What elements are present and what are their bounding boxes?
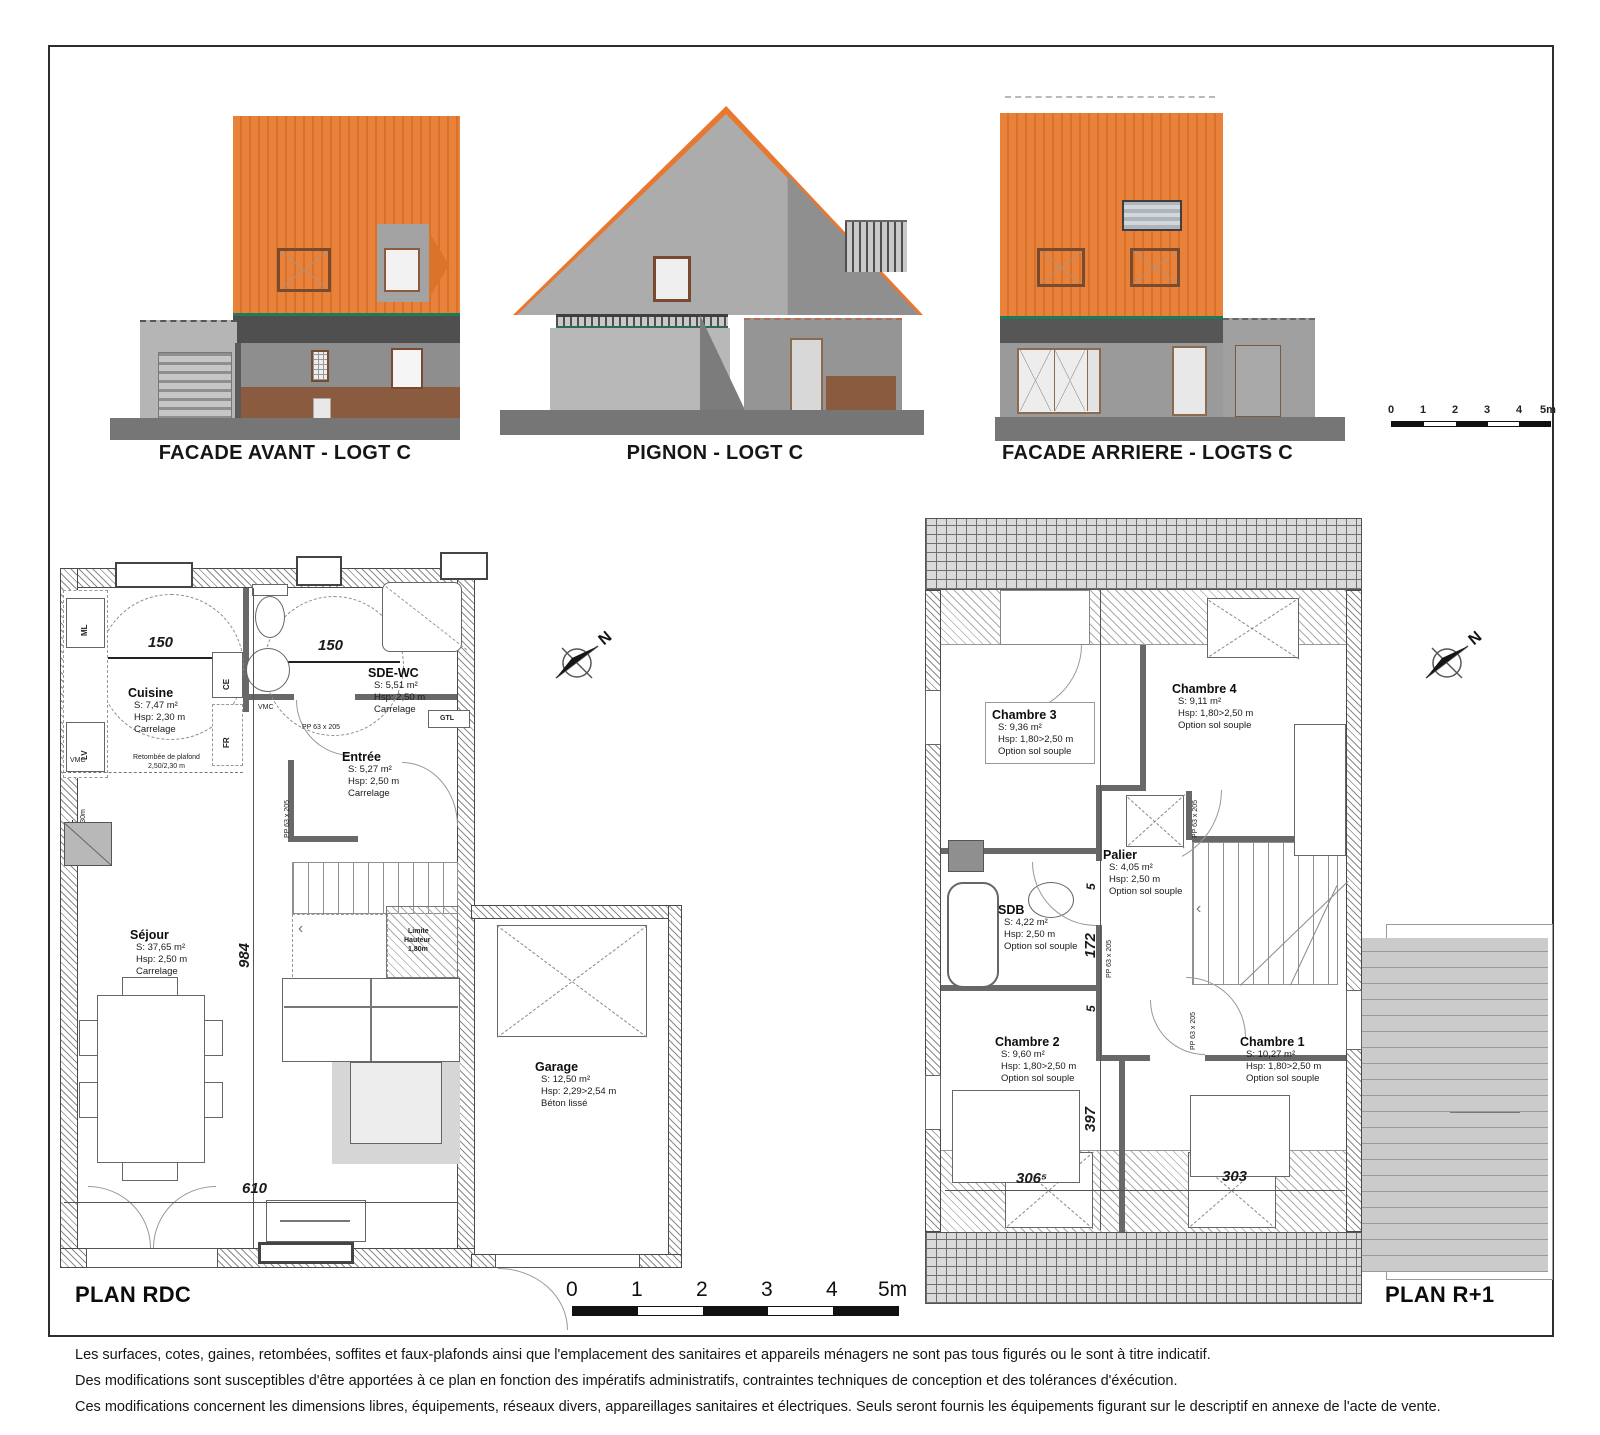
entree-floor: Carrelage — [348, 788, 399, 800]
r1-pp-3: PP 63 x 205 — [1192, 800, 1199, 838]
avant-wall — [233, 343, 460, 389]
scale-bottom-tick-5: 5m — [878, 1278, 907, 1302]
r1-dim-172: 172 — [1082, 933, 1099, 958]
chair-top — [122, 977, 178, 996]
ch2-area: S: 9,60 m² — [1001, 1049, 1076, 1061]
r1-dormer-gap — [1000, 590, 1090, 645]
sofa-backline — [284, 1006, 458, 1008]
room-ch3: Chambre 3 S: 9,36 m² Hsp: 1,80>2,50 m Op… — [992, 708, 1073, 758]
armchair — [350, 1062, 442, 1144]
r1-stairs — [1192, 842, 1338, 985]
rdc-dim150-cuisine-line — [103, 657, 230, 659]
sdb-bathtub — [947, 882, 999, 988]
avant-downpipe — [235, 343, 241, 420]
r1-wall-left — [925, 590, 941, 1232]
cuisine-floor: Carrelage — [134, 724, 185, 736]
r1-hdim-line — [945, 1190, 1345, 1191]
ch2-name: Chambre 2 — [995, 1035, 1076, 1049]
facade-arriere-label: FACADE ARRIERE - LOGTS C — [975, 442, 1320, 465]
sofa-split — [370, 979, 372, 1061]
rdc-pp-label-2: PP 63 x 205 — [284, 800, 291, 838]
arriere-annex-door — [1235, 345, 1281, 417]
footer-line-1: Les surfaces, cotes, gaines, retombées, … — [75, 1347, 1211, 1363]
room-cuisine: Cuisine S: 7,47 m² Hsp: 2,30 m Carrelage — [128, 686, 185, 736]
sde-floor: Carrelage — [374, 704, 425, 716]
r1-pp-2: PP 63 x 205 — [1190, 1012, 1197, 1050]
scale-bottom-tick-4: 4 — [826, 1278, 838, 1302]
avant-dark-band — [233, 316, 460, 343]
rdc-dim150-cuisine: 150 — [148, 634, 173, 651]
scale-top-tick-0: 0 — [1388, 404, 1394, 416]
r1-pp-1: PP 63 x 205 — [1106, 940, 1113, 978]
palier-area: S: 4,05 m² — [1109, 862, 1182, 874]
r1-window-left-ch3 — [925, 690, 941, 745]
facade-avant-label: FACADE AVANT - LOGT C — [110, 442, 460, 465]
footer-line-3: Ces modifications concernent les dimensi… — [75, 1399, 1441, 1415]
rdc-dim150-sde: 150 — [318, 637, 343, 654]
r1-window-right-ch1 — [1346, 990, 1362, 1050]
room-sdb: SDB S: 4,22 m² Hsp: 2,50 m Option sol so… — [998, 903, 1077, 953]
pignon-door — [790, 338, 823, 412]
scale-top-tick-5: 5m — [1540, 404, 1556, 416]
avant-brown-band — [233, 387, 460, 420]
room-ch4: Chambre 4 S: 9,11 m² Hsp: 1,80>2,50 m Op… — [1172, 682, 1253, 732]
ch1-area: S: 10,27 m² — [1246, 1049, 1321, 1061]
scale-bottom-tick-2: 2 — [696, 1278, 708, 1302]
rdc-pp-label-1: PP 63 x 205 — [302, 724, 340, 731]
pignon-ground — [500, 410, 924, 435]
room-entree: Entrée S: 5,27 m² Hsp: 2,50 m Carrelage — [342, 750, 399, 800]
ch4-bed — [1294, 724, 1346, 856]
r1-window-left-ch2 — [925, 1075, 941, 1130]
palier-name: Palier — [1103, 848, 1182, 862]
pignon-window — [653, 256, 691, 302]
r1-dim-397: 397 — [1082, 1107, 1099, 1132]
cuisine-fr-label: FR — [222, 737, 231, 748]
ch4-hsp: Hsp: 1,80>2,50 m — [1178, 708, 1253, 720]
cuisine-lv-box — [66, 722, 105, 772]
garage-door-gap — [495, 1254, 640, 1268]
cuisine-name: Cuisine — [128, 686, 185, 700]
avant-skylight-window — [277, 248, 331, 292]
avant-postbox — [313, 398, 331, 420]
retombee-dashline — [63, 772, 243, 773]
chair-right-2 — [204, 1082, 223, 1118]
entree-name: Entrée — [342, 750, 399, 764]
r1-wall-palier-top — [1096, 785, 1146, 791]
ch4-floor: Option sol souple — [1178, 720, 1253, 732]
room-ch2: Chambre 2 S: 9,60 m² Hsp: 1,80>2,50 m Op… — [995, 1035, 1076, 1085]
palier-hsp: Hsp: 2,50 m — [1109, 874, 1182, 886]
tv-stand-line — [280, 1220, 350, 1222]
rdc-stairs-dashed — [292, 914, 388, 982]
scale-bottom-bar — [572, 1306, 899, 1316]
palier-floor: Option sol souple — [1109, 886, 1182, 898]
cuisine-ce-box — [212, 652, 243, 698]
plan-r1-title: PLAN R+1 — [1385, 1282, 1494, 1308]
r1-dim-303: 303 — [1222, 1168, 1247, 1185]
room-ch1: Chambre 1 S: 10,27 m² Hsp: 1,80>2,50 m O… — [1240, 1035, 1321, 1085]
avant-window-right — [391, 348, 423, 389]
arriere-roof-window-right — [1130, 248, 1180, 287]
terrace-deck — [1362, 938, 1548, 1272]
terrace-arrow-line — [1450, 1112, 1520, 1113]
rdc-window-cuisine — [115, 562, 193, 588]
r1-wall-right — [1346, 590, 1362, 1232]
scale-top-bar — [1391, 421, 1551, 427]
sdb-hsp: Hsp: 2,50 m — [1004, 929, 1077, 941]
avant-ground — [110, 418, 460, 440]
arriere-roof — [1000, 113, 1223, 316]
sde-hsp: Hsp: 2,50 m — [374, 692, 425, 704]
arriere-dark-band — [1000, 319, 1223, 343]
room-sde: SDE-WC S: 5,51 m² Hsp: 2,50 m Carrelage — [368, 666, 425, 716]
scale-bottom-tick-1: 1 — [631, 1278, 643, 1302]
scale-top-tick-1: 1 — [1420, 404, 1426, 416]
arriere-roof-window-left — [1037, 248, 1085, 287]
scale-top-tick-2: 2 — [1452, 404, 1458, 416]
avant-dormer-window — [384, 248, 420, 292]
chair-bottom — [122, 1162, 178, 1181]
sejour-floor: Carrelage — [136, 966, 187, 978]
gtl-label: GTL — [440, 715, 454, 722]
arriere-ridge-line — [1005, 96, 1215, 98]
garage-name: Garage — [535, 1060, 616, 1074]
arriere-french-door-sidelight — [1087, 350, 1099, 411]
dining-table — [97, 995, 205, 1163]
r1-stairs-arrow: ‹ — [1196, 900, 1201, 918]
limite-label-2: Hauteur — [404, 937, 430, 944]
ch1-name: Chambre 1 — [1240, 1035, 1321, 1049]
sde-name: SDE-WC — [368, 666, 425, 680]
scale-bottom-tick-0: 0 — [566, 1278, 578, 1302]
pignon-label: PIGNON - LOGT C — [520, 442, 910, 465]
room-palier: Palier S: 4,05 m² Hsp: 2,50 m Option sol… — [1103, 848, 1182, 898]
ch3-floor: Option sol souple — [998, 746, 1073, 758]
chair-right-1 — [204, 1020, 223, 1056]
plan-rdc-title: PLAN RDC — [75, 1282, 191, 1308]
retombee-label: Retombée de plafond — [133, 754, 200, 761]
scale-top-tick-4: 4 — [1516, 404, 1522, 416]
avant-window-small — [311, 350, 329, 382]
ch3-area: S: 9,36 m² — [998, 722, 1073, 734]
garage-wall-right — [668, 905, 682, 1268]
ch1-hsp: Hsp: 1,80>2,50 m — [1246, 1061, 1321, 1073]
r1-dim-306: 306⁵ — [1016, 1170, 1047, 1187]
sde-toilet-tank — [252, 584, 288, 596]
pignon-slat-screen — [845, 220, 907, 272]
sdb-floor: Option sol souple — [1004, 941, 1077, 953]
scale-bottom-tick-3: 3 — [761, 1278, 773, 1302]
sejour-area: S: 37,65 m² — [136, 942, 187, 954]
cuisine-hsp: Hsp: 2,30 m — [134, 712, 185, 724]
rdc-dim-984: 984 — [236, 943, 253, 968]
rdc-vdim-line — [253, 588, 254, 1248]
arriere-french-door-pane-right — [1054, 350, 1085, 411]
retombee-value: 2,50/2,30 m — [148, 763, 185, 770]
entree-hsp: Hsp: 2,50 m — [348, 776, 399, 788]
cuisine-fr-box — [212, 704, 243, 766]
garage-area: S: 12,50 m² — [541, 1074, 616, 1086]
sejour-bottom-window — [258, 1242, 354, 1264]
chair-left-2 — [79, 1082, 98, 1118]
r1-roof-band-bottom — [925, 1232, 1362, 1304]
garage-wall-top — [471, 905, 682, 919]
avant-garage-door — [158, 352, 232, 420]
rdc-wall-stair-top — [288, 836, 358, 842]
rdc-hdim-line — [64, 1202, 458, 1203]
rdc-dim150-sde-line — [283, 661, 400, 663]
sdb-name: SDB — [998, 903, 1077, 917]
sde-vmc-label: VMC — [258, 704, 274, 711]
plan-sheet: FACADE AVANT - LOGT C PIGNON - LOGT C FA… — [0, 0, 1600, 1435]
ch1-floor: Option sol souple — [1246, 1073, 1321, 1085]
garage-hsp: Hsp: 2,29>2,54 m — [541, 1086, 616, 1098]
scale-top-tick-3: 3 — [1484, 404, 1490, 416]
arriere-ground — [995, 417, 1345, 441]
limite-label-1: Limite — [408, 928, 429, 935]
rdc-window-sde — [440, 552, 488, 580]
ch2-hsp: Hsp: 1,80>2,50 m — [1001, 1061, 1076, 1073]
r1-dim-5a: 5 — [1084, 883, 1098, 890]
room-garage: Garage S: 12,50 m² Hsp: 2,29>2,54 m Béto… — [535, 1060, 616, 1110]
sejour-hsp: Hsp: 2,50 m — [136, 954, 187, 966]
garage-floor: Béton lissé — [541, 1098, 616, 1110]
footer-line-2: Des modifications sont susceptibles d'êt… — [75, 1373, 1178, 1389]
pignon-brown-panel — [826, 376, 896, 412]
ch4-name: Chambre 4 — [1172, 682, 1253, 696]
ch1-bed — [1190, 1095, 1290, 1177]
room-sejour: Séjour S: 37,65 m² Hsp: 2,50 m Carrelage — [130, 928, 187, 978]
r1-vdim-line — [1100, 590, 1101, 1230]
r1-roof-band-top — [925, 518, 1362, 590]
r1-wall-ch1-ch2 — [1119, 1061, 1125, 1232]
ch2-floor: Option sol souple — [1001, 1073, 1076, 1085]
cuisine-vmc-label: VMC — [70, 757, 86, 764]
cuisine-ml-box — [66, 598, 105, 648]
sejour-name: Séjour — [130, 928, 187, 942]
r1-dim-5b: 5 — [1084, 1005, 1098, 1012]
arriere-french-door-pane-left — [1020, 350, 1051, 411]
cuisine-ce-label: CE — [222, 679, 231, 690]
chair-left-1 — [79, 1020, 98, 1056]
cuisine-ml-label: ML — [80, 624, 89, 636]
sde-area: S: 5,51 m² — [374, 680, 425, 692]
cuisine-area: S: 7,47 m² — [134, 700, 185, 712]
entree-area: S: 5,27 m² — [348, 764, 399, 776]
sdb-shower-corner — [948, 840, 984, 872]
entry-door-gap — [86, 1248, 218, 1268]
sde-toilet-bowl — [255, 596, 285, 638]
sdb-area: S: 4,22 m² — [1004, 917, 1077, 929]
limite-label-3: 1,80m — [408, 946, 428, 953]
arriere-door — [1172, 346, 1207, 416]
rdc-stairs-arrow: ‹ — [298, 920, 303, 938]
rdc-vent-block — [296, 556, 342, 586]
arriere-solar-panel — [1122, 200, 1182, 231]
rdc-dim-610: 610 — [242, 1180, 267, 1197]
ch3-name: Chambre 3 — [992, 708, 1073, 722]
r1-wall-ch3-ch4 — [1140, 645, 1146, 790]
ch4-area: S: 9,11 m² — [1178, 696, 1253, 708]
ch3-hsp: Hsp: 1,80>2,50 m — [998, 734, 1073, 746]
